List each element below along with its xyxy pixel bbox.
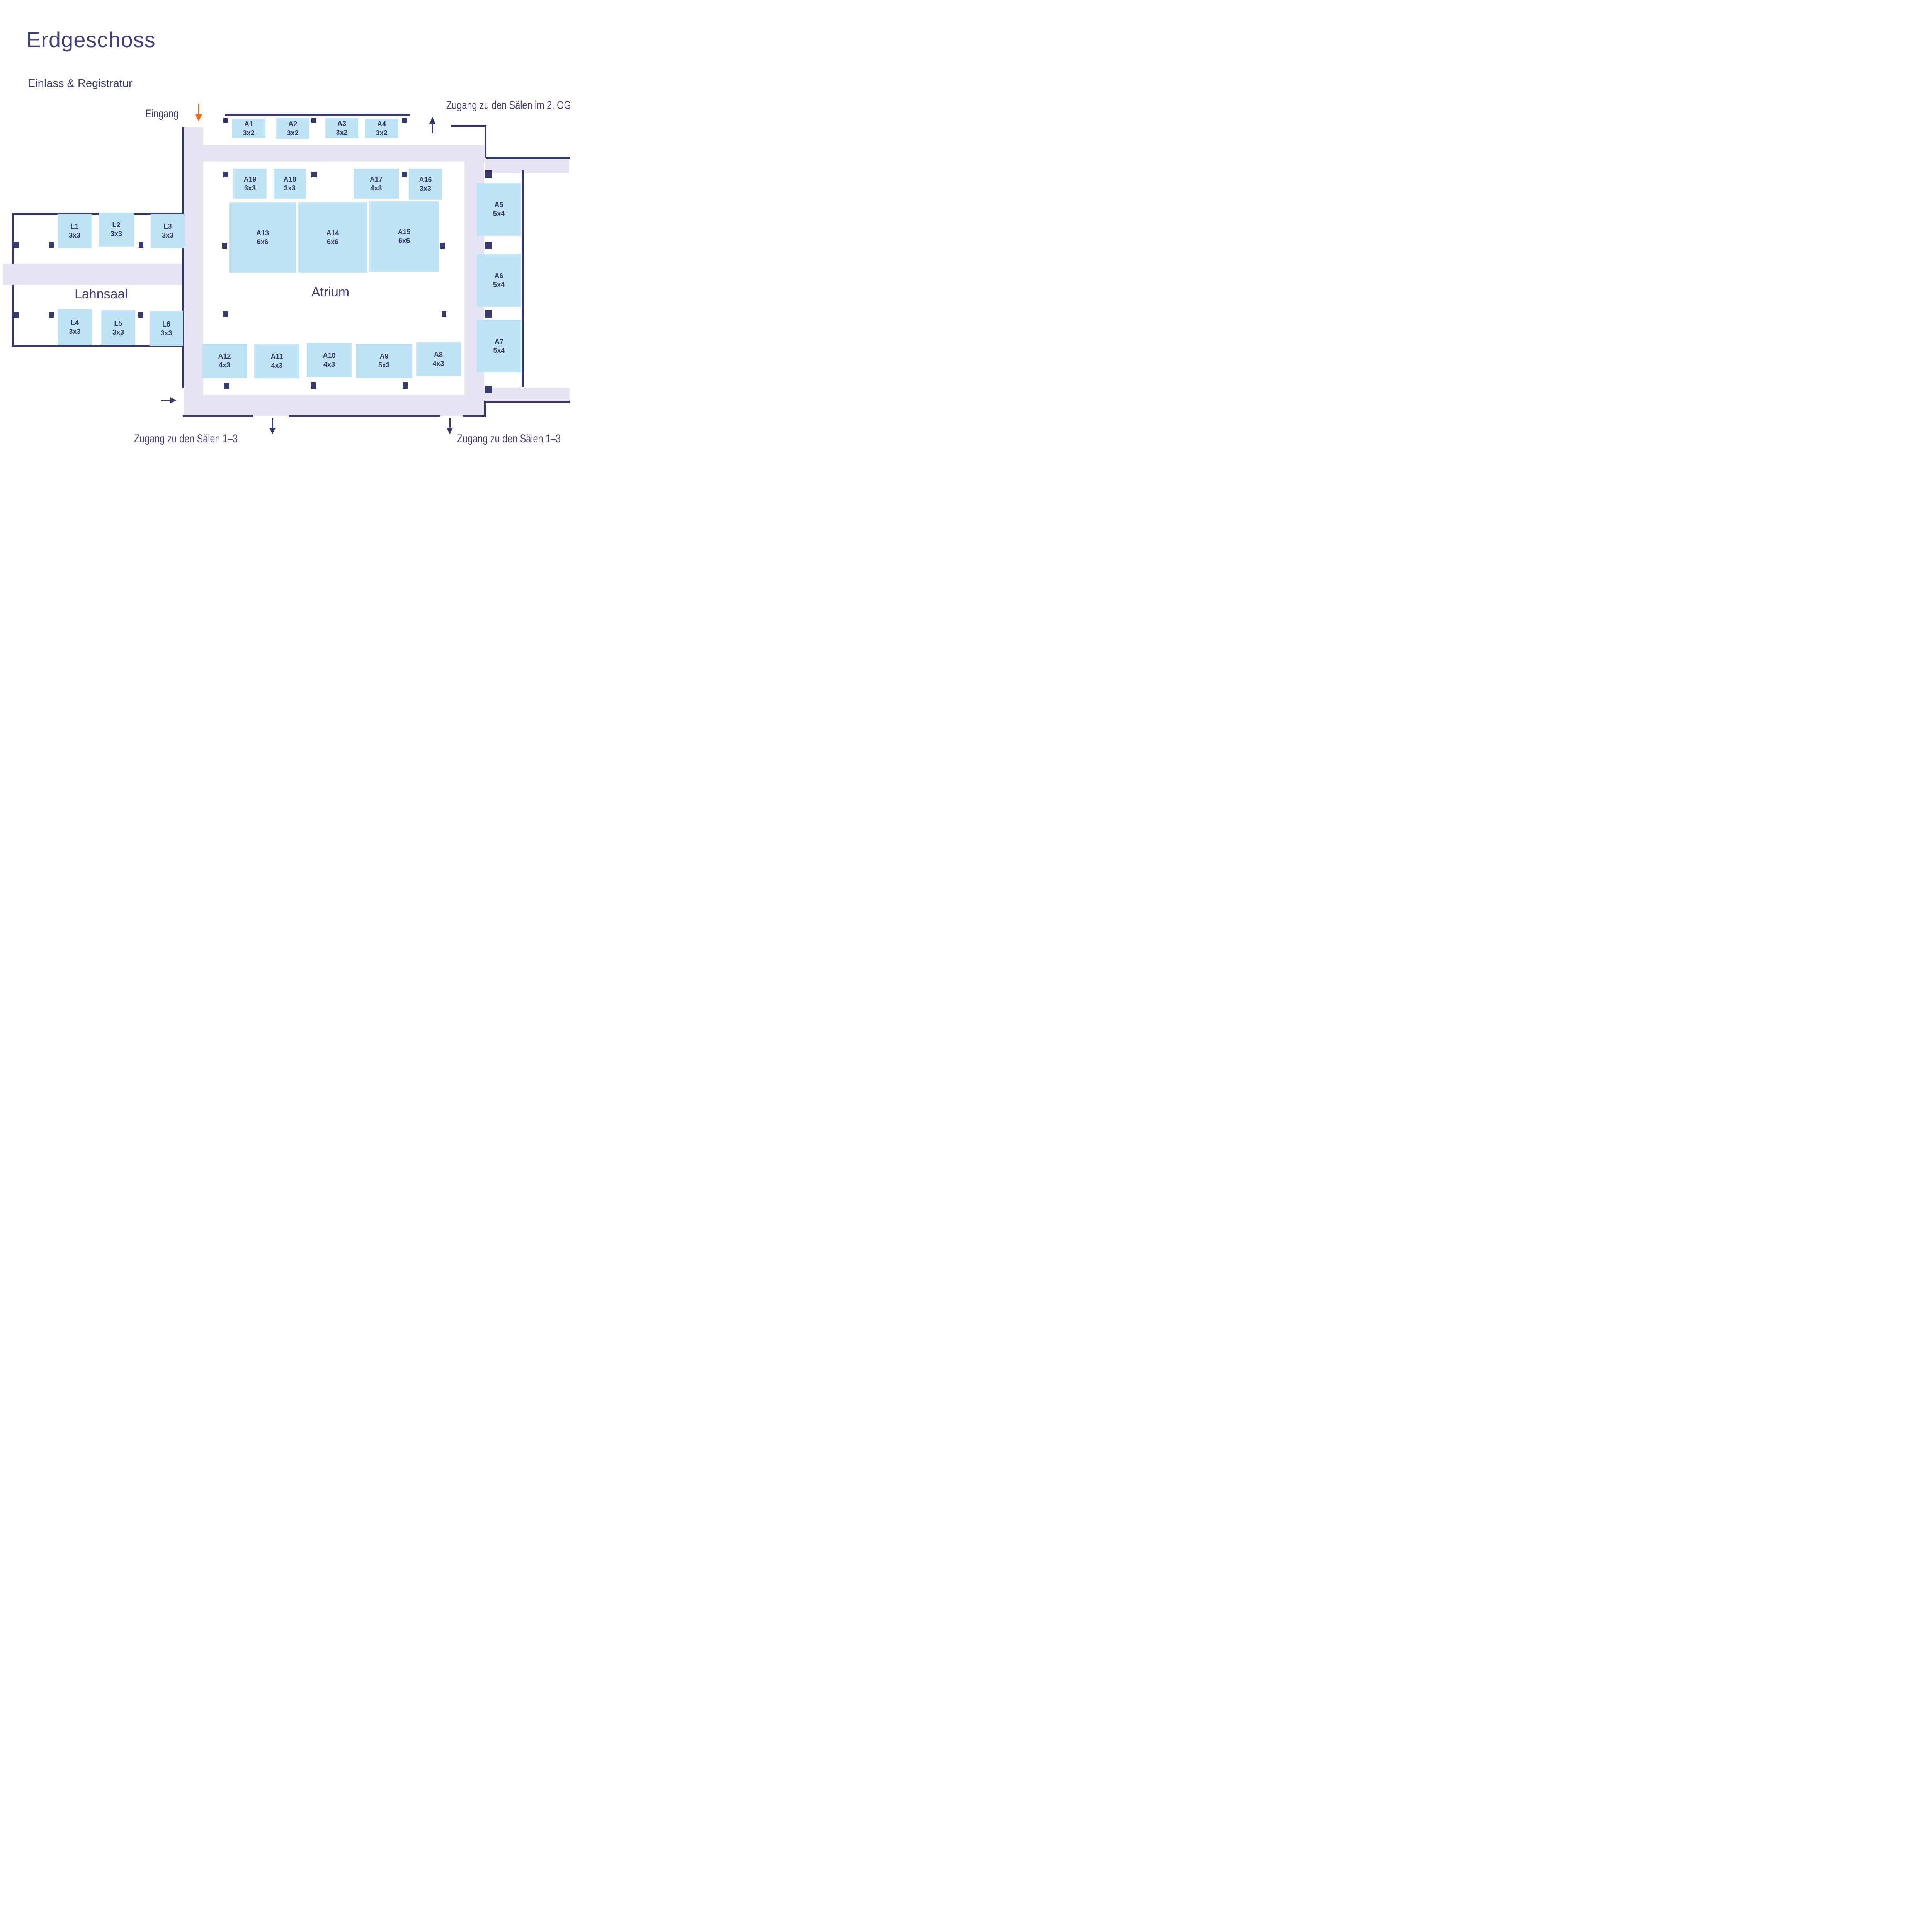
access-halls-right-label: Zugang zu den Sälen 1–3 (457, 432, 590, 446)
booth-a13: A136x6 (229, 202, 296, 273)
booth-l1-id-label: L1 (70, 222, 78, 231)
booth-a6-id-label: A6 (494, 272, 503, 281)
pillar-10 (139, 242, 143, 248)
wall-segment-1 (225, 114, 410, 116)
access-halls-left-label-text: Zugang zu den Sälen 1–3 (134, 432, 238, 446)
booth-a12: A124x3 (202, 344, 247, 378)
pillar-22 (403, 382, 408, 389)
wall-segment-7 (12, 213, 14, 264)
lahnsaal-arrow-shaft (161, 400, 171, 401)
halls-right-arrow (447, 428, 453, 434)
booth-l2-size-label: 3x3 (111, 230, 122, 238)
booth-a6: A65x4 (477, 254, 521, 307)
pillar-1 (223, 118, 228, 123)
booth-a1-size-label: 3x2 (243, 129, 254, 138)
booth-a2: A23x2 (276, 118, 309, 139)
wall-segment-10 (522, 170, 524, 387)
booth-l1-size-label: 3x3 (69, 231, 80, 240)
booth-l5: L53x3 (101, 310, 135, 345)
booth-l4-id-label: L4 (71, 318, 79, 327)
booth-a13-id-label: A13 (256, 229, 269, 238)
wall-segment-3 (485, 125, 486, 158)
entrance-label: Eingang (101, 107, 179, 121)
wall-segment-13 (463, 415, 485, 417)
booth-l5-size-label: 3x3 (112, 328, 124, 337)
corridor-segment-6 (184, 395, 484, 416)
entrance-arrow (195, 114, 202, 121)
pillar-6 (402, 172, 407, 177)
booth-a5-id-label: A5 (494, 201, 503, 209)
booth-a4-id-label: A4 (377, 120, 386, 129)
pillar-18 (442, 311, 446, 317)
booth-a19-size-label: 3x3 (244, 184, 256, 193)
booth-a8-size-label: 4x3 (432, 359, 444, 368)
booth-l2-id-label: L2 (112, 221, 120, 230)
wall-segment-2 (451, 125, 486, 127)
booth-a15-id-label: A15 (398, 228, 410, 236)
booth-a1-id-label: A1 (244, 120, 253, 129)
booth-l1: L13x3 (58, 214, 92, 248)
booth-l2: L23x3 (99, 213, 134, 247)
pillar-20 (224, 383, 229, 389)
pillar-16 (138, 312, 143, 318)
corridor-segment-1 (184, 127, 203, 416)
corridor-segment-7 (484, 388, 570, 401)
pillar-7 (485, 170, 492, 178)
pillar-15 (49, 312, 54, 318)
booth-a17-id-label: A17 (370, 175, 383, 184)
booth-a11: A114x3 (254, 344, 299, 378)
booth-a1: A13x2 (232, 119, 265, 138)
booth-a15: A156x6 (369, 201, 439, 272)
booth-l6: L63x3 (150, 311, 183, 346)
pillar-21 (311, 382, 316, 389)
pillar-13 (485, 241, 492, 249)
booth-a3-id-label: A3 (337, 119, 346, 128)
page-subtitle: Einlass & Registratur (28, 77, 133, 90)
entrance-label-text: Eingang (145, 107, 179, 121)
pillar-11 (222, 243, 227, 249)
wall-segment-14 (484, 401, 486, 417)
corridor-segment-4 (3, 264, 182, 285)
booth-a10-size-label: 4x3 (323, 360, 335, 369)
pillar-23 (485, 386, 492, 393)
booth-a8: A84x3 (416, 342, 461, 376)
booth-a2-size-label: 3x2 (287, 129, 298, 138)
floorplan-page: A13x2A23x2A33x2A43x2A193x3A183x3A174x3A1… (0, 0, 609, 483)
booth-a16-size-label: 3x3 (420, 184, 431, 193)
booth-a9-size-label: 5x3 (378, 361, 390, 370)
wall-segment-12 (289, 415, 440, 417)
booth-a9-id-label: A9 (379, 352, 388, 361)
pillar-2 (311, 118, 316, 123)
booth-a10-id-label: A10 (323, 351, 335, 360)
access-halls-right-label-text: Zugang zu den Sälen 1–3 (457, 432, 561, 446)
booth-l4: L43x3 (58, 309, 92, 345)
booth-l3-size-label: 3x3 (162, 231, 173, 240)
corridor-segment-3 (485, 159, 569, 173)
pillar-17 (223, 311, 228, 317)
room-label-lahnsaal: Lahnsaal (63, 287, 140, 302)
booth-a12-size-label: 4x3 (219, 361, 230, 370)
booth-a3: A33x2 (325, 118, 358, 138)
booth-a8-id-label: A8 (434, 350, 443, 359)
wall-segment-5 (182, 127, 184, 388)
booth-a13-size-label: 6x6 (257, 238, 268, 247)
pillar-9 (49, 242, 54, 248)
booth-a14-size-label: 6x6 (327, 238, 338, 247)
wall-segment-4 (486, 157, 570, 159)
pillar-12 (440, 243, 445, 249)
wall-segment-11 (183, 415, 253, 417)
booth-a5-size-label: 5x4 (493, 209, 505, 218)
booth-a4-size-label: 3x2 (376, 129, 387, 138)
booth-a19: A193x3 (233, 169, 267, 199)
pillar-8 (13, 242, 19, 248)
booth-a14: A146x6 (298, 202, 367, 273)
booth-a11-size-label: 4x3 (271, 361, 282, 370)
booth-a6-size-label: 5x4 (493, 281, 505, 289)
pillar-5 (311, 172, 317, 177)
booth-a12-id-label: A12 (218, 352, 231, 361)
booth-a5: A55x4 (477, 183, 521, 236)
booth-a17-size-label: 4x3 (370, 184, 382, 193)
pillar-3 (402, 118, 407, 123)
booth-a18: A183x3 (274, 169, 306, 199)
access-og2-label: Zugang zu den Sälen im 2. OG (446, 99, 606, 112)
booth-a7-size-label: 5x4 (493, 346, 505, 355)
booth-l4-size-label: 3x3 (69, 327, 80, 336)
booth-l3: L33x3 (151, 214, 185, 248)
halls-left-arrow (269, 428, 276, 434)
booth-l6-id-label: L6 (162, 320, 170, 329)
booth-a7-id-label: A7 (495, 337, 503, 346)
booth-a16-id-label: A16 (419, 175, 432, 184)
pillar-19 (485, 310, 492, 318)
booth-l3-id-label: L3 (163, 222, 172, 231)
booth-a4: A43x2 (365, 119, 398, 138)
page-title: Erdgeschoss (26, 27, 156, 52)
booth-a9: A95x3 (356, 344, 412, 378)
lahnsaal-arrow (170, 397, 177, 403)
entrance-arrow-shaft (198, 104, 199, 115)
access-halls-left-label: Zugang zu den Sälen 1–3 (134, 432, 267, 446)
booth-a18-size-label: 3x3 (284, 184, 296, 193)
booth-l6-size-label: 3x3 (160, 329, 172, 338)
booth-a15-size-label: 6x6 (398, 236, 410, 245)
booth-a11-id-label: A11 (270, 352, 283, 361)
booth-a19-id-label: A19 (243, 175, 256, 184)
booth-a18-id-label: A18 (283, 175, 296, 184)
pillar-14 (13, 312, 19, 318)
og2-arrow (429, 117, 436, 124)
og2-arrow-shaft (432, 124, 433, 133)
corridor-segment-2 (184, 145, 486, 162)
booth-a10: A104x3 (307, 343, 352, 377)
room-label-atrium: Atrium (292, 285, 369, 300)
access-og2-label-text: Zugang zu den Sälen im 2. OG (446, 99, 571, 112)
halls-right-arrow-shaft (449, 418, 451, 429)
booth-a17: A174x3 (354, 169, 399, 199)
booth-a7: A75x4 (477, 320, 521, 372)
booth-a16: A163x3 (409, 169, 442, 200)
booth-a2-id-label: A2 (288, 120, 297, 129)
booth-l5-id-label: L5 (114, 319, 122, 328)
pillar-4 (223, 172, 228, 177)
booth-a14-id-label: A14 (326, 229, 339, 238)
booth-a3-size-label: 3x2 (336, 128, 347, 137)
wall-segment-15 (486, 401, 570, 403)
halls-left-arrow-shaft (272, 418, 273, 429)
